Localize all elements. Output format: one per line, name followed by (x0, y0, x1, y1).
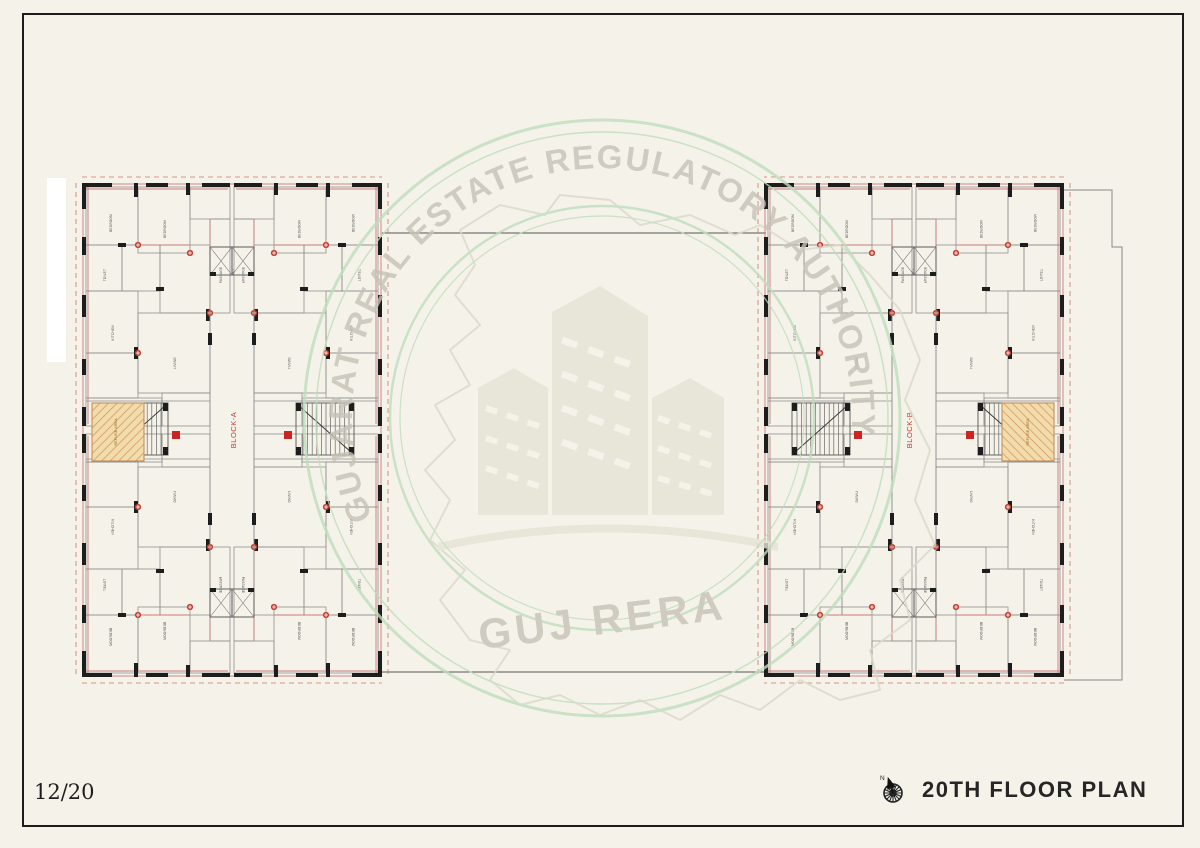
block-b-refuge-label: REFUGE AREA (1026, 418, 1030, 445)
title-bar: N 20TH FLOOR PLAN (872, 770, 1172, 810)
block-a-label: BLOCK-A (229, 412, 238, 448)
drawing-sheet: BEDROOM BEDROOM TOILET KITCHEN LIVING PA… (0, 0, 1200, 848)
sheet-title: 20TH FLOOR PLAN (922, 777, 1147, 803)
block-b-plan: BLOCK-B REFUGE AREA (758, 177, 1070, 683)
block-b-label: BLOCK-B (905, 412, 914, 448)
block-a-plan: BLOCK-A REFUGE AREA (76, 177, 388, 683)
left-margin-patch (47, 178, 66, 362)
north-compass-icon: N (872, 770, 912, 810)
block-connector-lines (382, 233, 766, 672)
page-number: 12/20 (34, 780, 95, 804)
block-a-refuge-label: REFUGE AREA (114, 418, 118, 445)
open-terrace-outline (1064, 190, 1122, 680)
floor-plan-drawing: BEDROOM BEDROOM TOILET KITCHEN LIVING PA… (0, 0, 1200, 848)
compass-north-label: N (880, 775, 885, 782)
